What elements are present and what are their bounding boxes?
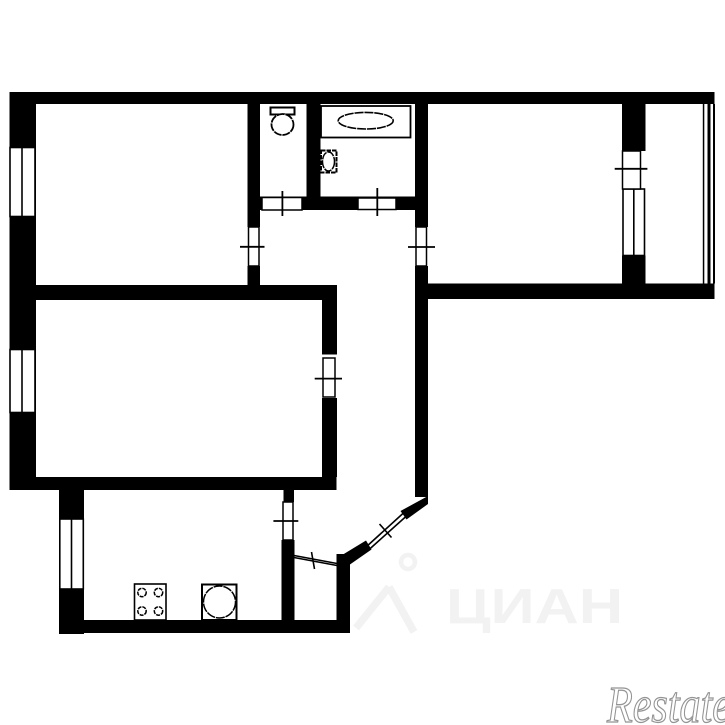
svg-text:ЦИАН: ЦИАН bbox=[446, 580, 623, 634]
svg-text:Restate: Restate bbox=[606, 677, 725, 725]
